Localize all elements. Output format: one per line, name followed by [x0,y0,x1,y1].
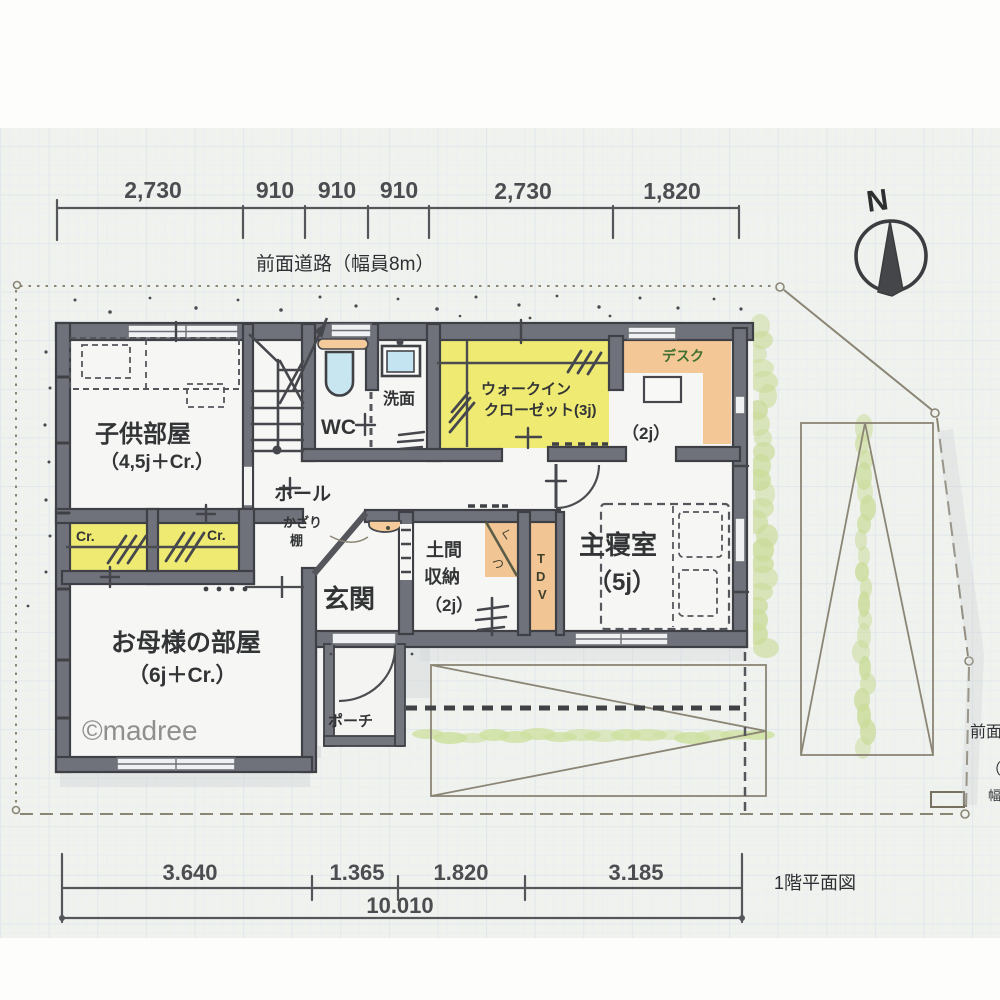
svg-text:幅: 幅 [988,788,1000,803]
svg-text:主寝室: 主寝室 [579,530,657,560]
svg-text:収納: 収納 [424,566,460,587]
svg-text:洗面: 洗面 [383,389,415,408]
svg-text:つ: つ [492,557,504,571]
svg-text:1.820: 1.820 [433,860,488,885]
svg-text:前面道路（幅員8m）: 前面道路（幅員8m） [256,253,434,275]
svg-text:910: 910 [380,177,418,203]
svg-text:（6j＋Cr.）: （6j＋Cr.） [128,663,237,687]
svg-text:子供部屋: 子供部屋 [95,420,191,448]
svg-text:WC: WC [321,416,356,439]
svg-text:お母様の部屋: お母様の部屋 [111,628,261,657]
svg-text:3.640: 3.640 [162,860,217,885]
svg-text:10.010: 10.010 [366,893,433,918]
svg-text:前面: 前面 [970,723,1000,741]
svg-text:©madree: ©madree [82,715,198,746]
svg-text:玄関: 玄関 [323,584,375,614]
svg-text:（4,5j＋Cr.）: （4,5j＋Cr.） [100,450,214,473]
svg-text:1階平面図: 1階平面図 [774,873,856,893]
svg-text:Cr.: Cr. [207,527,226,543]
svg-text:かざり: かざり [283,515,322,530]
svg-text:N: N [864,183,890,219]
svg-text:V: V [538,587,547,602]
svg-text:クローゼット(3j): クローゼット(3j) [484,401,597,419]
svg-text:ポーチ: ポーチ [328,712,373,730]
svg-text:2,730: 2,730 [494,178,552,204]
svg-text:2,730: 2,730 [124,177,182,203]
svg-text:棚: 棚 [290,533,303,548]
svg-text:T: T [537,551,545,566]
svg-text:D: D [536,569,545,584]
svg-text:ホール: ホール [274,484,331,505]
svg-text:土間: 土間 [426,540,462,560]
svg-text:（2j）: （2j） [425,595,473,615]
svg-text:1,820: 1,820 [643,178,701,204]
svg-text:（2j）: （2j） [622,423,670,443]
svg-text:（: （ [986,761,1000,778]
svg-text:910: 910 [256,177,294,203]
svg-text:（5j）: （5j） [588,569,656,596]
svg-text:3.185: 3.185 [608,860,663,885]
svg-text:デスク: デスク [662,348,704,364]
svg-text:1.365: 1.365 [329,860,384,885]
svg-text:Cr.: Cr. [76,528,95,544]
svg-text:910: 910 [318,177,356,203]
svg-text:ウォークイン: ウォークイン [481,381,571,398]
